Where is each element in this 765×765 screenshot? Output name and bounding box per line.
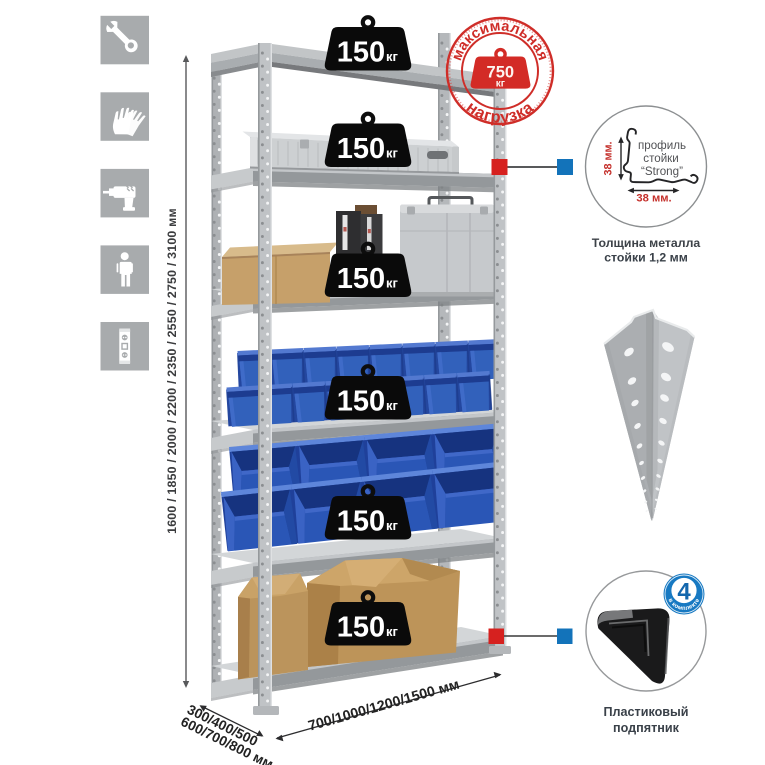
svg-text:кг: кг [496,79,505,90]
svg-text:38 мм.: 38 мм. [636,193,671,205]
svg-text:стойки: стойки [643,152,678,165]
svg-text:“Strong”: “Strong” [641,165,683,178]
svg-text:38 мм.: 38 мм. [603,142,615,176]
svg-text:Толщина металла: Толщина металла [592,236,701,250]
svg-text:стойки 1,2 мм: стойки 1,2 мм [604,251,688,265]
svg-text:4: 4 [677,579,691,606]
svg-text:подпятник: подпятник [613,721,680,735]
svg-text:1600 / 1850 / 2000 / 2200 / 23: 1600 / 1850 / 2000 / 2200 / 2350 / 2550 … [165,208,179,534]
svg-text:Пластиковый: Пластиковый [603,705,688,719]
svg-text:профиль: профиль [638,139,686,152]
